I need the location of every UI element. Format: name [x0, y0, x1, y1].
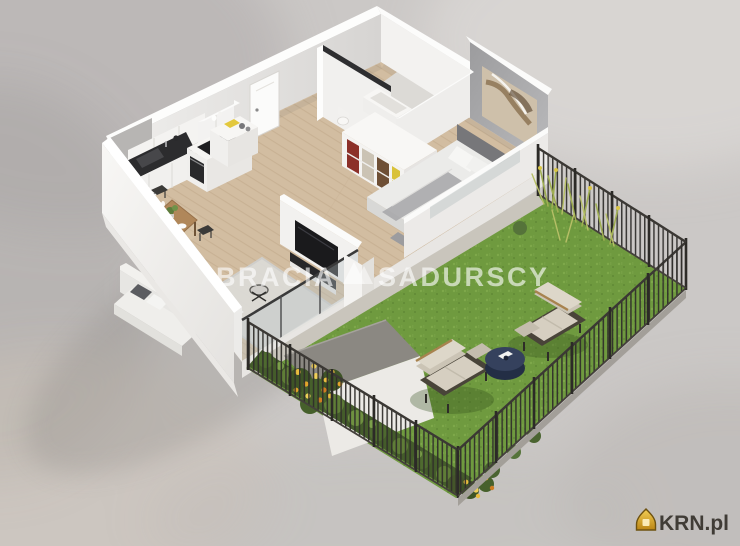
watermark-text-right: SADURSCY: [378, 262, 550, 292]
deco-vase: [212, 115, 217, 121]
logo-brand: KRN: [659, 512, 705, 535]
watermark-text-left: BRACIA: [216, 262, 336, 292]
garden-shrub: [513, 221, 527, 235]
floorplan-render: BRACIA SADURSCY KRN.pl: [0, 0, 740, 546]
door-handle: [255, 108, 258, 111]
counter-appliance: [173, 135, 178, 140]
watermark: BRACIA SADURSCY: [216, 262, 550, 292]
pot: [246, 127, 251, 132]
floorplan-screenshot: BRACIA SADURSCY KRN.pl: [0, 0, 740, 546]
round-coffee-table: [485, 347, 525, 380]
logo-tld: .pl: [705, 512, 730, 535]
pot: [239, 123, 245, 129]
svg-text:KRN.pl: KRN.pl: [659, 512, 729, 535]
deco-vase: [218, 111, 222, 116]
